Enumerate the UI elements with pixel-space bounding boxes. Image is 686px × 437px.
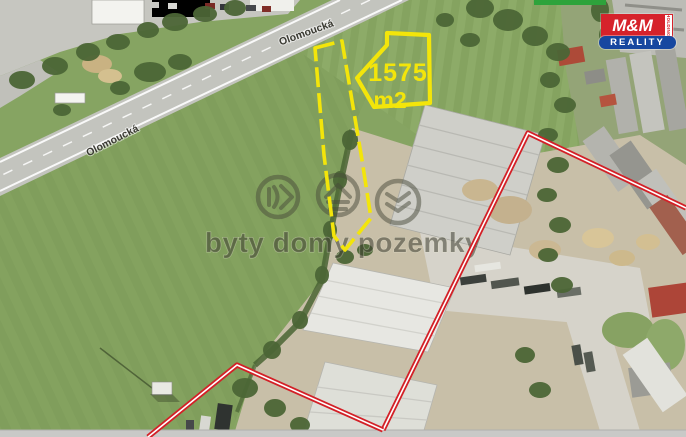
watermark-text: byty domy pozemky [205,227,481,258]
logo-green-strip [534,0,606,5]
logo-holding-text: HOLDING [666,15,671,36]
image-bottom-strip [0,430,686,437]
logo-reality-band: REALITY [599,36,676,49]
building-roof [250,0,294,11]
logo-holding-strip: HOLDING [665,15,672,36]
dirt-patch [98,69,122,83]
logo-red-box: M&M HOLDING [601,14,673,37]
shed [152,382,172,395]
red-roof-building [648,282,686,317]
aerial-photo: byty domy pozemky 1575 m2 Olomoucká Olom… [0,0,686,437]
billboard [55,93,85,103]
listing-aerial-image: byty domy pozemky 1575 m2 Olomoucká Olom… [0,0,686,437]
area-value: 1575 [368,59,428,87]
mm-reality-logo: M&M HOLDING REALITY [601,14,675,49]
logo-mm-text: M&M [601,14,664,37]
building-roof [92,0,144,24]
area-unit: m2 [373,87,406,113]
